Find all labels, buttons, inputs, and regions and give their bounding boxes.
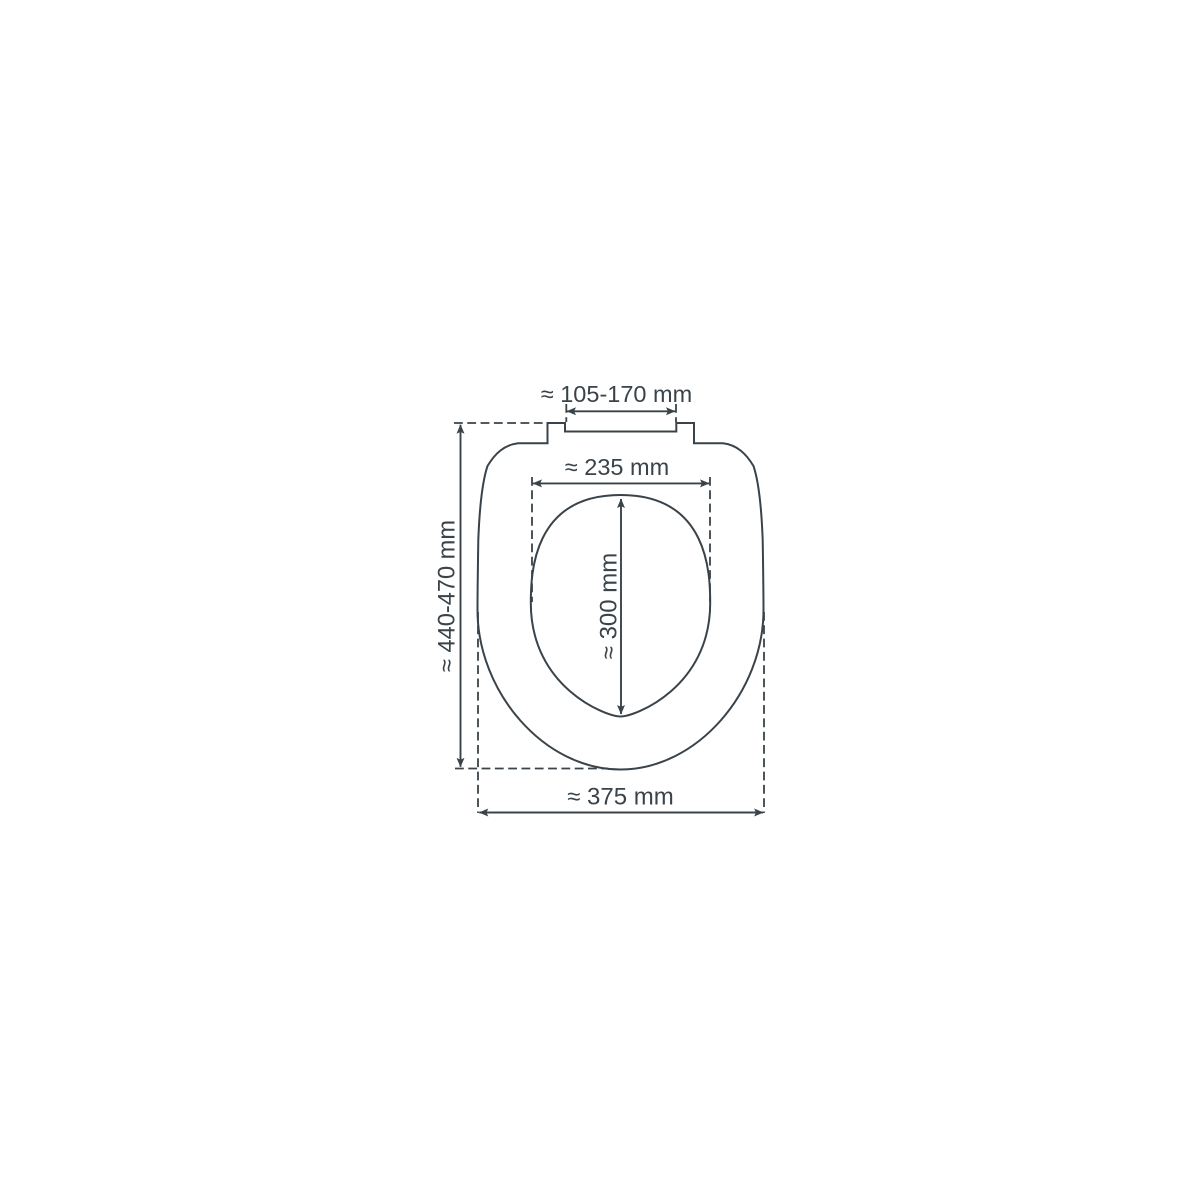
svg-text:≈ 300 mm: ≈ 300 mm <box>596 553 623 660</box>
svg-text:≈ 235 mm: ≈ 235 mm <box>565 454 669 480</box>
svg-text:≈ 105-170 mm: ≈ 105-170 mm <box>541 381 692 407</box>
svg-text:≈ 375 mm: ≈ 375 mm <box>567 783 674 810</box>
svg-text:≈ 440-470 mm: ≈ 440-470 mm <box>434 520 460 672</box>
